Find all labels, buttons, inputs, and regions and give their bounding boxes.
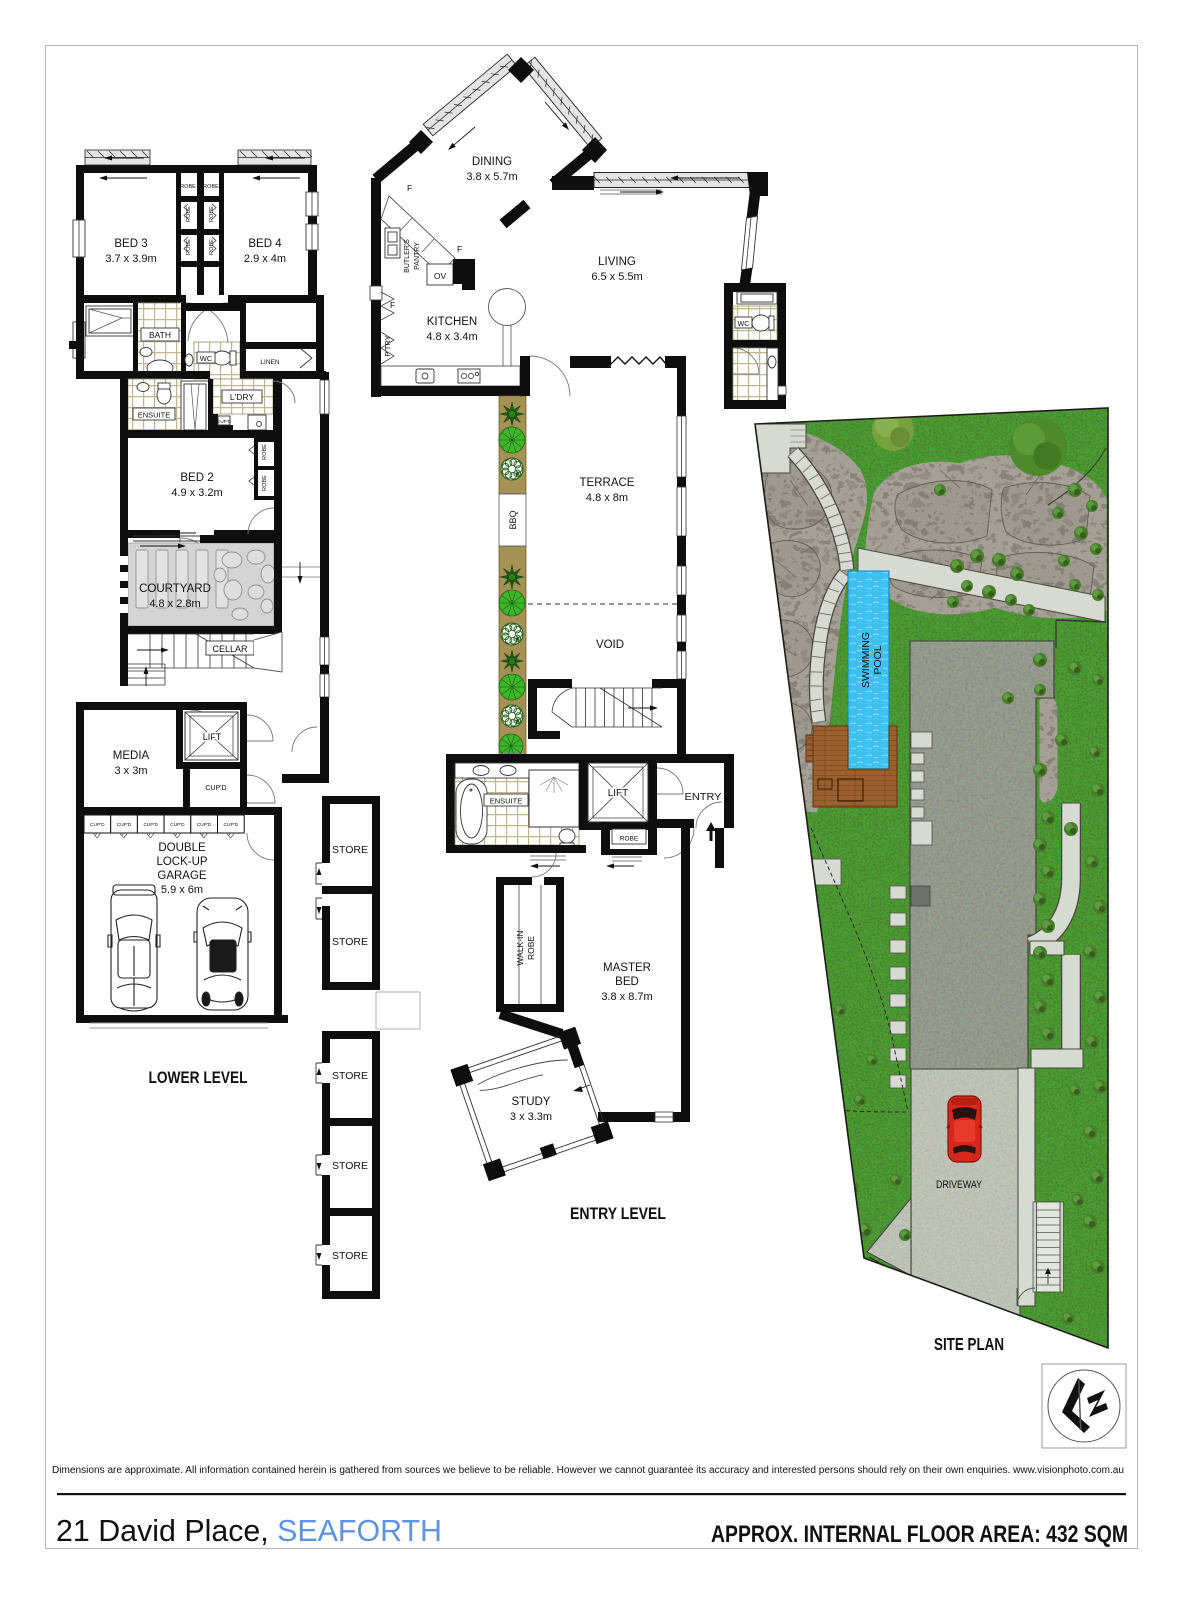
svg-text:F: F — [457, 244, 462, 254]
svg-text:OV: OV — [434, 271, 447, 281]
svg-text:KITCHEN: KITCHEN — [427, 316, 477, 328]
svg-text:ROBE: ROBE — [180, 184, 196, 190]
svg-text:CUP'D: CUP'D — [217, 419, 232, 424]
svg-text:DRIVEWAY: DRIVEWAY — [936, 1179, 983, 1191]
svg-text:COURTYARD: COURTYARD — [139, 583, 211, 595]
svg-text:4.8 x 3.4m: 4.8 x 3.4m — [426, 331, 477, 343]
svg-text:APPROX. INTERNAL FLOOR AREA: 4: APPROX. INTERNAL FLOOR AREA: 432 SQM — [711, 1521, 1128, 1548]
svg-text:CUP'D: CUP'D — [197, 822, 212, 828]
svg-text:BUTLER'S: BUTLER'S — [404, 239, 411, 273]
svg-text:LIFT: LIFT — [203, 732, 222, 742]
svg-text:ROBE: ROBE — [262, 475, 268, 491]
svg-text:Dimensions are approximate. Al: Dimensions are approximate. All informat… — [52, 1465, 1124, 1476]
svg-text:L'DRY: L'DRY — [230, 392, 254, 402]
svg-text:3.8 x 5.7m: 3.8 x 5.7m — [466, 171, 517, 183]
svg-text:BED: BED — [615, 976, 639, 988]
svg-text:4.8 x 2.8m: 4.8 x 2.8m — [149, 598, 200, 610]
svg-text:PANTRY: PANTRY — [414, 242, 421, 270]
svg-text:ROBE: ROBE — [186, 239, 192, 255]
svg-text:STORE: STORE — [332, 936, 368, 948]
svg-text:ENSUITE: ENSUITE — [490, 797, 523, 806]
svg-text:3 x 3m: 3 x 3m — [114, 765, 147, 777]
svg-text:4.9 x 3.2m: 4.9 x 3.2m — [171, 487, 222, 499]
svg-text:BBQ: BBQ — [508, 510, 518, 529]
svg-text:WALK-IN: WALK-IN — [515, 930, 525, 965]
svg-text:MASTER: MASTER — [603, 962, 651, 974]
svg-text:21 David Place, SEAFORTH: 21 David Place, SEAFORTH — [56, 1513, 442, 1548]
svg-text:CUP'D: CUP'D — [170, 822, 185, 828]
svg-text:F: F — [407, 183, 412, 193]
svg-text:CUP'D: CUP'D — [224, 822, 239, 828]
svg-text:ROBE: ROBE — [203, 184, 219, 190]
svg-text:LIVING: LIVING — [598, 256, 636, 268]
svg-text:2.9 x 4m: 2.9 x 4m — [244, 253, 286, 265]
svg-text:CUP'D: CUP'D — [90, 822, 105, 828]
svg-text:BATH: BATH — [149, 330, 171, 340]
svg-text:SWIMMING: SWIMMING — [860, 632, 872, 688]
svg-text:SITE PLAN: SITE PLAN — [934, 1334, 1004, 1354]
svg-text:CUP'D: CUP'D — [205, 785, 226, 792]
svg-text:ENTRY LEVEL: ENTRY LEVEL — [570, 1204, 666, 1223]
svg-text:TERRACE: TERRACE — [580, 477, 635, 489]
svg-text:MEDIA: MEDIA — [113, 750, 150, 762]
svg-text:LIFT: LIFT — [608, 788, 629, 799]
svg-text:ROBE: ROBE — [186, 206, 192, 222]
svg-text:VOID: VOID — [596, 639, 624, 651]
svg-text:DOUBLE: DOUBLE — [158, 842, 206, 854]
svg-text:3 x 3.3m: 3 x 3.3m — [510, 1111, 552, 1123]
svg-text:WC: WC — [200, 354, 213, 363]
svg-text:LOCK-UP: LOCK-UP — [156, 856, 207, 868]
svg-text:P'TRY: P'TRY — [383, 335, 392, 356]
svg-text:POOL: POOL — [872, 645, 884, 674]
svg-text:3.8 x 8.7m: 3.8 x 8.7m — [601, 991, 652, 1003]
svg-text:CUP'D: CUP'D — [143, 822, 158, 828]
svg-text:BED 2: BED 2 — [180, 472, 213, 484]
svg-text:ROBE: ROBE — [262, 444, 268, 460]
svg-text:6.5 x 5.5m: 6.5 x 5.5m — [591, 271, 642, 283]
svg-text:ENSUITE: ENSUITE — [138, 411, 171, 420]
svg-text:STORE: STORE — [332, 1070, 368, 1082]
svg-text:F: F — [390, 300, 395, 310]
svg-text:BED 4: BED 4 — [248, 238, 282, 250]
svg-text:STORE: STORE — [332, 1250, 368, 1262]
svg-text:GARAGE: GARAGE — [157, 870, 207, 882]
svg-text:WC: WC — [738, 321, 750, 328]
svg-text:4.8 x 8m: 4.8 x 8m — [586, 492, 628, 504]
svg-text:STORE: STORE — [332, 844, 368, 856]
svg-text:ENTRY: ENTRY — [685, 791, 722, 803]
svg-text:CUP'D: CUP'D — [117, 822, 132, 828]
svg-text:STORE: STORE — [332, 1160, 368, 1172]
svg-text:BED 3: BED 3 — [114, 238, 147, 250]
svg-text:ROBE: ROBE — [620, 836, 639, 843]
svg-text:CELLAR: CELLAR — [212, 644, 248, 654]
svg-text:LINEN: LINEN — [260, 359, 279, 366]
svg-text:LOWER LEVEL: LOWER LEVEL — [149, 1068, 248, 1087]
svg-text:5.9 x 6m: 5.9 x 6m — [161, 884, 203, 896]
svg-text:DINING: DINING — [472, 156, 512, 168]
svg-text:STUDY: STUDY — [512, 1096, 551, 1108]
svg-text:ROBE: ROBE — [526, 936, 536, 960]
svg-text:3.7 x 3.9m: 3.7 x 3.9m — [105, 253, 156, 265]
